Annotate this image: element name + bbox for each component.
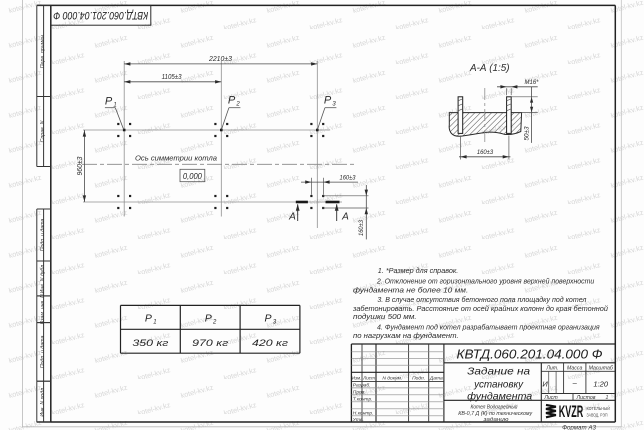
svg-text:970 кг: 970 кг (192, 338, 228, 349)
svg-text:Масштаб: Масштаб (589, 365, 614, 371)
svg-text:Перв. примен.: Перв. примен. (40, 34, 46, 68)
svg-text:Справ. N: Справ. N (40, 120, 46, 142)
svg-text:Листов: Листов (576, 395, 596, 401)
svg-text:Формат А3: Формат А3 (562, 424, 596, 430)
svg-text:350 кг: 350 кг (132, 338, 168, 349)
svg-text:Подп.: Подп. (412, 376, 425, 382)
svg-text:Пров.: Пров. (353, 390, 366, 396)
svg-text:4. Фундамент под котел разраб: 4. Фундамент под котел разрабатывает про… (377, 322, 600, 331)
svg-text:50±3: 50±3 (524, 126, 531, 140)
svg-text:P: P (228, 95, 236, 107)
svg-text:Инв. N дубл.: Инв. N дубл. (40, 263, 46, 293)
svg-text:160±3: 160±3 (358, 220, 365, 236)
svg-text:Утв.: Утв. (353, 417, 364, 423)
svg-text:Т.контр.: Т.контр. (353, 397, 373, 403)
svg-text:А: А (341, 212, 349, 223)
svg-text:Взам. инв. N: Взам. инв. N (40, 294, 46, 324)
svg-text:P: P (145, 313, 152, 325)
svg-text:KVZR: KVZR (559, 402, 584, 421)
svg-text:P: P (324, 95, 332, 107)
svg-text:Н.контр.: Н.контр. (353, 411, 374, 417)
svg-text:заданию: заданию (482, 417, 508, 423)
svg-text:0,000: 0,000 (183, 172, 203, 181)
svg-text:–: – (572, 378, 578, 387)
svg-text:КВТД.060.201.04.000 Ф: КВТД.060.201.04.000 Ф (457, 346, 603, 361)
svg-text:Лист: Лист (543, 395, 558, 401)
svg-text:И: И (542, 380, 548, 389)
svg-text:Подп. и дата: Подп. и дата (40, 336, 46, 369)
svg-text:Изм.: Изм. (352, 376, 362, 381)
svg-text:Котел Водогрейный: Котел Водогрейный (471, 403, 518, 410)
svg-text:1: 1 (606, 395, 609, 401)
svg-text:Лист: Лист (362, 376, 375, 381)
svg-text:N докум.: N докум. (382, 376, 402, 382)
svg-text:А: А (288, 212, 296, 223)
svg-text:1105±3: 1105±3 (162, 74, 182, 81)
svg-text:P: P (105, 96, 113, 108)
svg-text:фундамента не более 10 мм.: фундамента не более 10 мм. (353, 286, 468, 295)
svg-text:160±3: 160±3 (477, 149, 493, 156)
svg-text:А-А (1:5): А-А (1:5) (469, 63, 510, 74)
svg-text:1:20: 1:20 (593, 380, 608, 389)
svg-text:Ось симметрии котла: Ось симметрии котла (135, 154, 217, 163)
svg-text:Подп. и дата: Подп. и дата (40, 219, 46, 252)
svg-text:1: 1 (153, 320, 156, 326)
svg-text:420 кг: 420 кг (252, 338, 288, 349)
svg-text:Разраб.: Разраб. (353, 383, 371, 389)
svg-text:2210±3: 2210±3 (208, 56, 232, 63)
svg-text:Задание на: Задание на (467, 367, 530, 378)
svg-text:по нагрузкам на фундамент.: по нагрузкам на фундамент. (353, 331, 459, 340)
svg-text:2: 2 (235, 102, 240, 108)
svg-text:2: 2 (212, 320, 217, 326)
svg-text:ЗАВОД, РЭП: ЗАВОД, РЭП (587, 413, 608, 419)
svg-text:установку: установку (473, 379, 524, 390)
svg-text:КВТД.060.201.04.000 Ф: КВТД.060.201.04.000 Ф (53, 9, 148, 21)
svg-text:Дата: Дата (429, 376, 443, 382)
svg-text:960±3: 960±3 (77, 156, 84, 175)
svg-text:Масса: Масса (567, 365, 582, 371)
svg-text:Инв. N подл.: Инв. N подл. (40, 386, 46, 416)
svg-text:подушки 500 мм.: подушки 500 мм. (353, 312, 417, 321)
svg-text:160±3: 160±3 (340, 175, 356, 182)
svg-text:1. *Размер для справок.: 1. *Размер для справок. (378, 266, 459, 275)
svg-text:М16*: М16* (525, 79, 539, 86)
svg-text:Лит.: Лит. (545, 365, 558, 371)
svg-text:P: P (264, 313, 271, 325)
svg-text:2. Отклонение от горизонтальн: 2. Отклонение от горизонтального уровня … (376, 277, 594, 286)
svg-text:P: P (205, 313, 212, 325)
